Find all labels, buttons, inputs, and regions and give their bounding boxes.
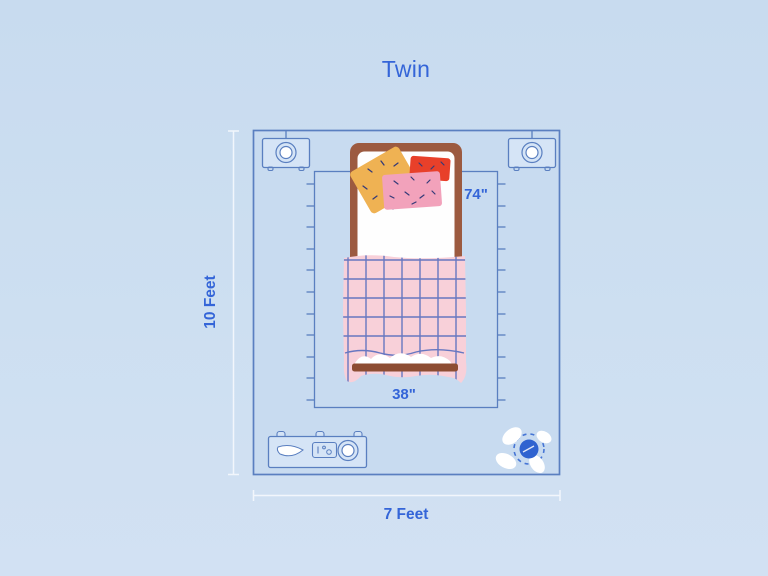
room-width-label: 7 Feet bbox=[384, 506, 429, 523]
dresser bbox=[269, 432, 367, 468]
height-dimension-line bbox=[228, 131, 239, 475]
bed-length-label: 74" bbox=[464, 186, 488, 203]
room-diagram: Twin 10 Feet 7 Feet bbox=[0, 0, 768, 576]
speaker-inner bbox=[342, 445, 354, 457]
diagram-title: Twin bbox=[382, 56, 431, 82]
footboard bbox=[352, 364, 458, 372]
bed-width-label: 38" bbox=[392, 386, 416, 403]
bed bbox=[342, 143, 468, 388]
width-dimension-line bbox=[254, 490, 561, 501]
lamp-inner bbox=[280, 147, 292, 159]
radio-item bbox=[313, 443, 337, 458]
room-height-label: 10 Feet bbox=[202, 275, 219, 328]
lamp-inner bbox=[526, 147, 538, 159]
bed-size-diagram: Twin 10 Feet 7 Feet bbox=[0, 0, 768, 576]
